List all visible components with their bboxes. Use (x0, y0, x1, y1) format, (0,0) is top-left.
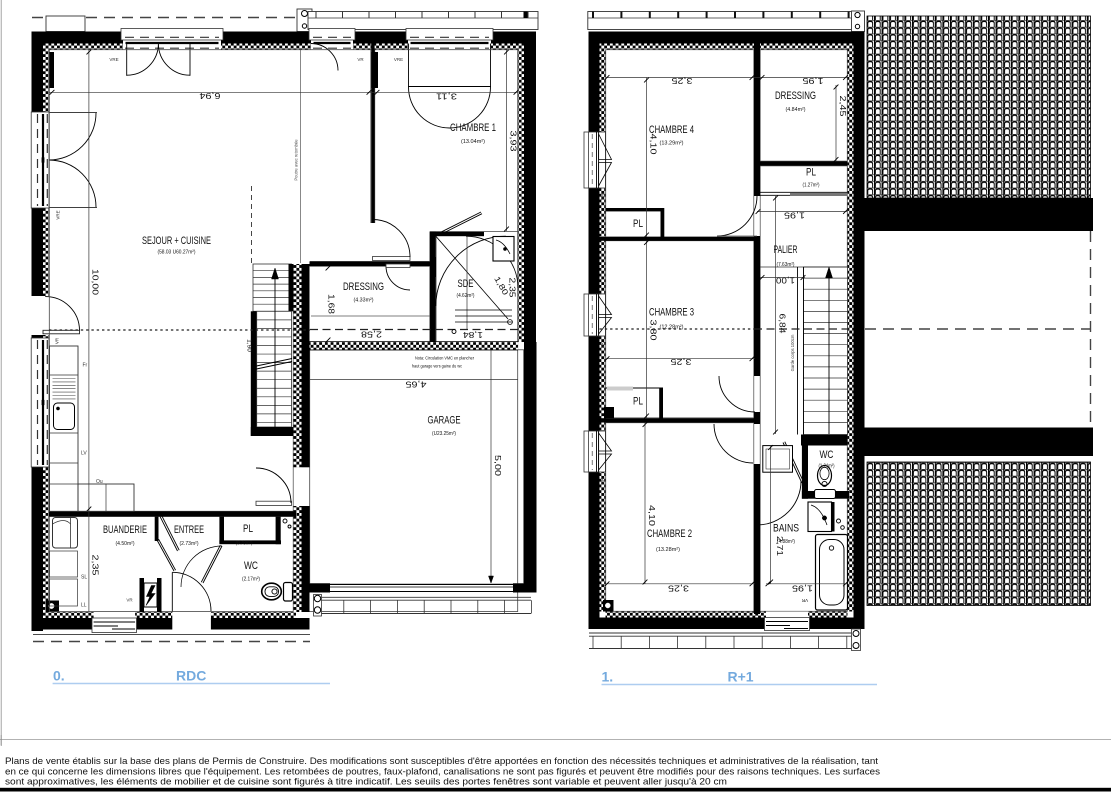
svg-text:en ce qui concerne les dimensi: en ce qui concerne les dimensions libres… (5, 766, 880, 776)
svg-text:WC: WC (820, 449, 834, 461)
svg-text:Poutre avec retombée: Poutre avec retombée (294, 139, 299, 181)
svg-text:CHAMBRE 2: CHAMBRE 2 (647, 528, 692, 540)
svg-text:1,95: 1,95 (783, 210, 805, 219)
svg-text:(1.27m²): (1.27m²) (803, 183, 820, 189)
svg-text:R+1: R+1 (728, 669, 754, 685)
svg-text:3,25: 3,25 (670, 357, 692, 366)
svg-text:6,84: 6,84 (777, 314, 786, 335)
svg-text:Nota: Circulation VMC en planc: Nota: Circulation VMC en plancher (415, 356, 474, 362)
svg-text:BUANDERIE: BUANDERIE (103, 524, 147, 536)
svg-text:sont approximatives, les éléme: sont approximatives, les éléments de mob… (5, 776, 727, 786)
svg-text:(1.24m²): (1.24m²) (819, 464, 835, 470)
svg-text:(0.78m²): (0.78m²) (236, 541, 253, 547)
svg-text:VR: VR (126, 598, 133, 603)
svg-text:(4.88m²): (4.88m²) (777, 539, 795, 545)
svg-text:1,95: 1,95 (791, 583, 813, 592)
svg-text:1,84: 1,84 (462, 330, 483, 339)
svg-text:VRE: VRE (109, 57, 118, 62)
svg-text:(13.04m²): (13.04m²) (461, 139, 485, 145)
svg-text:(2.73m²): (2.73m²) (180, 541, 199, 547)
svg-text:DRESSING: DRESSING (343, 281, 384, 293)
svg-text:SL: SL (81, 575, 87, 581)
svg-text:(4.50m²): (4.50m²) (116, 541, 135, 547)
svg-text:5,00: 5,00 (493, 455, 502, 477)
svg-text:(4.33m²): (4.33m²) (354, 298, 374, 304)
svg-text:haut garage vers gaine du wc: haut garage vers gaine du wc (412, 364, 462, 370)
svg-text:Plans de vente établis sur la: Plans de vente établis sur la base des p… (5, 756, 878, 766)
svg-text:4,10: 4,10 (649, 134, 658, 156)
svg-text:RDC: RDC (176, 668, 206, 684)
svg-text:2,35: 2,35 (91, 555, 100, 577)
svg-text:2,45: 2,45 (838, 96, 847, 118)
svg-text:LV: LV (81, 451, 87, 457)
svg-text:(13.28m²): (13.28m²) (656, 547, 680, 553)
svg-text:3,93: 3,93 (509, 131, 518, 153)
svg-text:PL: PL (806, 167, 816, 179)
svg-text:3,25: 3,25 (667, 583, 689, 592)
svg-text:Fr: Fr (83, 363, 88, 369)
svg-text:SDE: SDE (458, 278, 474, 290)
svg-text:3,11: 3,11 (435, 91, 457, 100)
svg-text:(13.29m²): (13.29m²) (660, 141, 684, 147)
svg-text:1,95: 1,95 (802, 76, 824, 85)
svg-text:DRESSING: DRESSING (775, 90, 816, 102)
svg-text:PL: PL (633, 396, 643, 408)
svg-text:4,10: 4,10 (647, 505, 656, 527)
svg-text:VRE: VRE (56, 210, 61, 219)
svg-text:Garde corps 100cm: Garde corps 100cm (790, 334, 795, 371)
svg-text:VR: VR (801, 598, 808, 603)
svg-text:2,35: 2,35 (508, 278, 517, 299)
svg-text:2,58: 2,58 (360, 330, 382, 339)
svg-text:1,00: 1,00 (775, 276, 795, 285)
svg-text:4,65: 4,65 (405, 380, 427, 389)
svg-text:Ou: Ou (96, 479, 103, 485)
svg-text:(4.84m²): (4.84m²) (786, 107, 806, 113)
svg-text:6,94: 6,94 (199, 91, 221, 100)
svg-text:1.: 1. (602, 669, 614, 685)
svg-text:VR: VR (600, 342, 605, 348)
svg-text:VRE: VRE (394, 57, 403, 62)
svg-text:VR: VR (600, 478, 605, 484)
svg-text:PL: PL (243, 523, 253, 535)
svg-text:(4.62m²): (4.62m²) (457, 293, 475, 299)
svg-text:3,80: 3,80 (649, 320, 658, 342)
svg-text:SEJOUR + CUISINE: SEJOUR + CUISINE (142, 235, 211, 247)
svg-text:WC: WC (244, 560, 258, 572)
svg-text:CHAMBRE 4: CHAMBRE 4 (649, 124, 694, 136)
svg-text:(12.28m²): (12.28m²) (660, 325, 684, 331)
svg-text:VR: VR (55, 337, 60, 344)
svg-text:VR: VR (600, 194, 605, 200)
svg-text:10,00: 10,00 (91, 269, 100, 296)
svg-text:PL: PL (633, 218, 643, 230)
svg-text:GARAGE: GARAGE (428, 415, 461, 427)
svg-text:(U23.25m²): (U23.25m²) (432, 431, 456, 437)
svg-text:0.: 0. (53, 668, 65, 684)
svg-text:1,90: 1,90 (246, 339, 253, 352)
svg-text:1,68: 1,68 (327, 294, 336, 315)
svg-text:(7.63m²): (7.63m²) (777, 262, 795, 268)
svg-text:CHAMBRE 3: CHAMBRE 3 (649, 307, 694, 319)
svg-text:PALIER: PALIER (774, 244, 798, 256)
svg-text:LL: LL (81, 603, 87, 609)
svg-text:CHAMBRE 1: CHAMBRE 1 (450, 122, 496, 134)
svg-text:(58.03 U60.27m²): (58.03 U60.27m²) (158, 250, 196, 256)
svg-text:BAINS: BAINS (773, 523, 799, 535)
svg-text:3,25: 3,25 (671, 76, 693, 85)
svg-text:(2.17m²): (2.17m²) (242, 577, 260, 583)
svg-text:ENTREE: ENTREE (174, 524, 204, 536)
svg-text:VR: VR (357, 57, 364, 62)
